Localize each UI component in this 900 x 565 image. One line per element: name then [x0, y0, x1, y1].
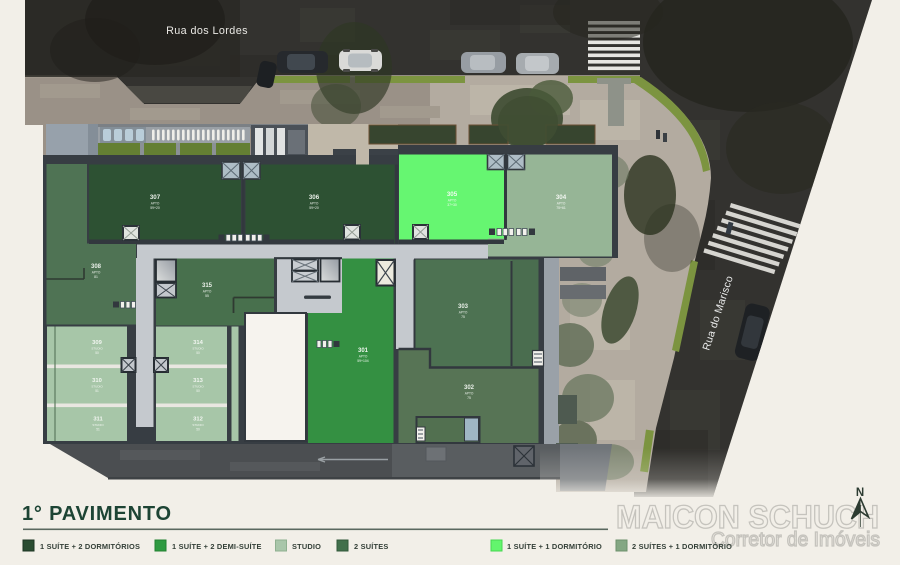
svg-text:STUDIO: STUDIO: [192, 385, 204, 389]
svg-text:310: 310: [92, 378, 102, 384]
svg-text:STUDIO: STUDIO: [91, 347, 103, 351]
svg-text:50: 50: [196, 351, 200, 355]
svg-text:2 SUÍTES + 1 DORMITÓRIO: 2 SUÍTES + 1 DORMITÓRIO: [632, 542, 732, 551]
svg-text:303: 303: [458, 304, 469, 310]
svg-text:STUDIO: STUDIO: [192, 347, 204, 351]
svg-text:APTO: APTO: [203, 290, 212, 294]
svg-text:N: N: [856, 487, 864, 499]
svg-text:Rua dos Lordes: Rua dos Lordes: [166, 25, 248, 37]
svg-text:309: 309: [92, 340, 102, 346]
svg-text:315: 315: [202, 283, 213, 289]
svg-text:304: 304: [556, 194, 567, 201]
svg-text:59+20: 59+20: [150, 206, 160, 210]
svg-text:314: 314: [193, 340, 203, 346]
svg-text:308: 308: [91, 264, 102, 270]
svg-text:75: 75: [461, 315, 465, 319]
svg-text:302: 302: [464, 385, 475, 391]
svg-text:APTO: APTO: [448, 199, 457, 203]
svg-text:75: 75: [467, 396, 471, 400]
svg-text:307: 307: [150, 194, 161, 201]
svg-text:1° PAVIMENTO: 1° PAVIMENTO: [22, 503, 172, 525]
svg-text:75+61: 75+61: [556, 206, 566, 210]
svg-text:STUDIO: STUDIO: [91, 385, 103, 389]
svg-text:312: 312: [193, 417, 203, 423]
svg-text:2 SUÍTES: 2 SUÍTES: [354, 542, 388, 551]
svg-text:STUDIO: STUDIO: [292, 542, 321, 551]
svg-text:59+20: 59+20: [309, 206, 319, 210]
svg-text:APTO: APTO: [465, 392, 474, 396]
svg-text:59+104: 59+104: [357, 359, 369, 363]
svg-text:APTO: APTO: [557, 202, 566, 206]
svg-text:1 SUÍTE + 2 DEMI-SUÍTE: 1 SUÍTE + 2 DEMI-SUÍTE: [172, 542, 262, 551]
svg-text:50: 50: [95, 351, 99, 355]
svg-text:51: 51: [96, 428, 100, 432]
svg-text:1 SUÍTE + 2 DORMITÓRIOS: 1 SUÍTE + 2 DORMITÓRIOS: [40, 542, 140, 551]
svg-text:313: 313: [193, 378, 203, 384]
svg-text:STUDIO: STUDIO: [92, 423, 104, 427]
svg-text:50: 50: [196, 389, 200, 393]
svg-text:305: 305: [447, 191, 458, 198]
svg-text:APTO: APTO: [310, 202, 319, 206]
svg-text:311: 311: [93, 417, 103, 423]
svg-text:37+30: 37+30: [447, 203, 457, 207]
svg-text:1 SUÍTE + 1 DORMITÓRIO: 1 SUÍTE + 1 DORMITÓRIO: [507, 542, 602, 551]
svg-text:306: 306: [309, 194, 320, 201]
svg-text:APTO: APTO: [459, 311, 468, 315]
svg-text:APTO: APTO: [92, 271, 101, 275]
svg-text:81: 81: [94, 275, 98, 279]
svg-text:51: 51: [95, 389, 99, 393]
svg-text:50: 50: [196, 428, 200, 432]
svg-text:55: 55: [205, 294, 209, 298]
svg-text:APTO: APTO: [359, 355, 368, 359]
svg-text:APTO: APTO: [151, 202, 160, 206]
svg-text:Corretor de Imóveis: Corretor de Imóveis: [711, 529, 880, 551]
svg-text:STUDIO: STUDIO: [192, 423, 204, 427]
svg-text:301: 301: [358, 348, 369, 354]
